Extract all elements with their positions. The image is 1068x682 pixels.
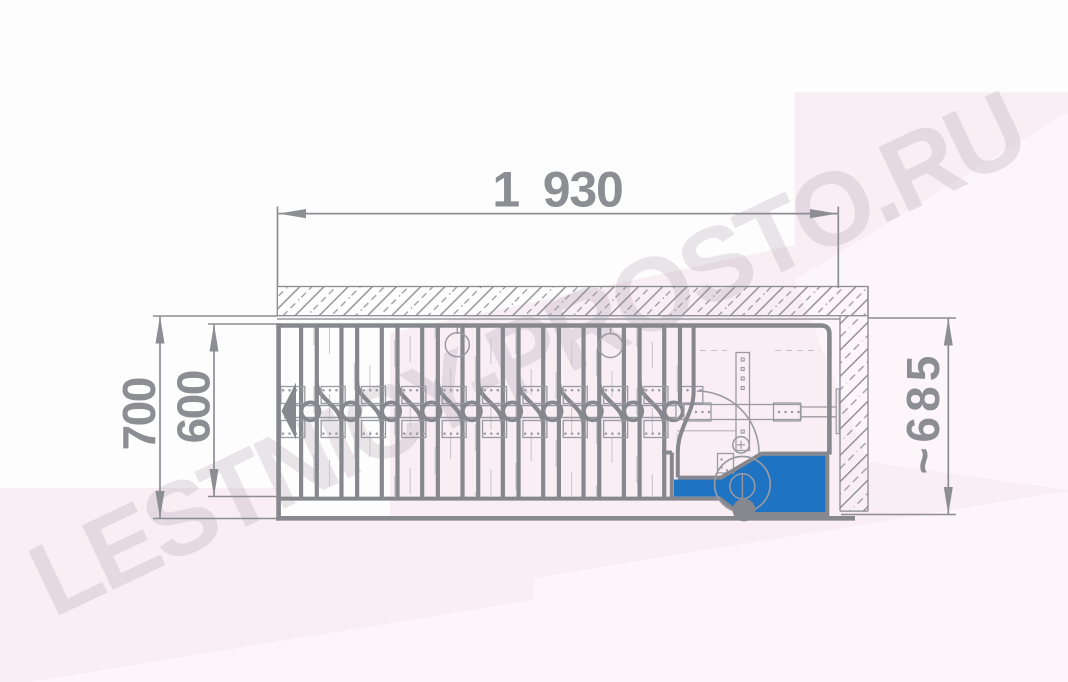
svg-text:600: 600 — [167, 371, 219, 443]
svg-text:700: 700 — [113, 378, 165, 450]
svg-text:~685: ~685 — [897, 351, 949, 475]
svg-text:1 930: 1 930 — [492, 162, 622, 218]
